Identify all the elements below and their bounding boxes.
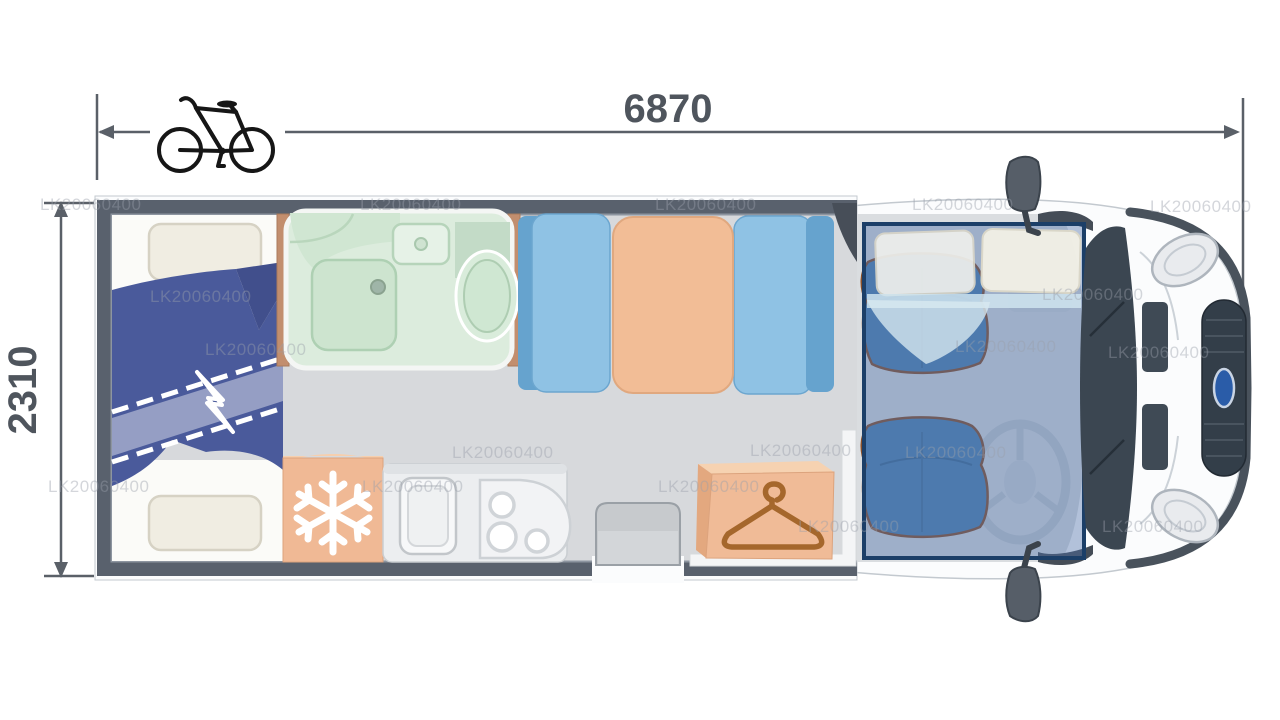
bench-right-backrest	[806, 216, 834, 392]
watermark-text: LK20060400	[655, 195, 756, 214]
kitchen	[283, 454, 570, 562]
watermark-text: LK20060400	[205, 340, 306, 359]
watermark-text: LK20060400	[362, 477, 463, 496]
arrowhead-left	[98, 125, 114, 139]
pillow-rear-bottom	[149, 496, 261, 550]
watermark-text: LK20060400	[1150, 197, 1251, 216]
watermark-text: LK20060400	[452, 443, 553, 462]
width-label: 2310	[1, 346, 45, 435]
watermark-text: LK20060400	[798, 517, 899, 536]
watermark-text: LK20060400	[150, 287, 251, 306]
pillow-cab-left	[875, 230, 975, 295]
bathroom	[277, 211, 520, 368]
shower-tray	[312, 260, 396, 350]
dinette-table	[613, 217, 733, 393]
burner-1	[490, 493, 514, 517]
bench-right-seat	[734, 216, 812, 394]
rear-beds	[112, 215, 283, 561]
floorplan-svg: 6870 2310	[0, 0, 1280, 720]
arrowhead-right	[1224, 125, 1240, 139]
shower-drain	[371, 280, 385, 294]
burner-3	[526, 530, 548, 552]
width-dimension	[44, 201, 94, 578]
watermark-text: LK20060400	[40, 195, 141, 214]
pillow-cab-right	[981, 229, 1081, 294]
watermark-text: LK20060400	[955, 337, 1056, 356]
watermark-text: LK20060400	[1108, 343, 1209, 362]
bicycle-icon	[159, 98, 273, 171]
dinette	[518, 203, 857, 394]
overcab-bed-overlay	[864, 224, 1084, 558]
sink-drain	[415, 238, 427, 250]
counter-top-edge	[383, 464, 567, 474]
watermark-text: LK20060400	[1042, 285, 1143, 304]
entry-door	[592, 503, 684, 583]
toilet-bowl-inner	[464, 260, 510, 332]
watermark-text: LK20060400	[912, 195, 1013, 214]
watermark-text: LK20060400	[750, 441, 851, 460]
hood-vent-bottom	[1142, 404, 1168, 470]
watermark-text: LK20060400	[658, 477, 759, 496]
watermark-text: LK20060400	[905, 443, 1006, 462]
floorplan-canvas: 6870 2310	[0, 0, 1280, 720]
entry-step-lower	[598, 531, 678, 564]
bench-left-seat	[532, 214, 610, 392]
ford-logo-icon	[1214, 369, 1234, 407]
windshield	[1080, 226, 1137, 549]
length-label: 6870	[624, 87, 713, 131]
burner-2	[488, 523, 516, 551]
watermark-text: LK20060400	[48, 477, 149, 496]
watermark-text: LK20060400	[1102, 517, 1203, 536]
watermark-text: LK20060400	[360, 195, 461, 214]
